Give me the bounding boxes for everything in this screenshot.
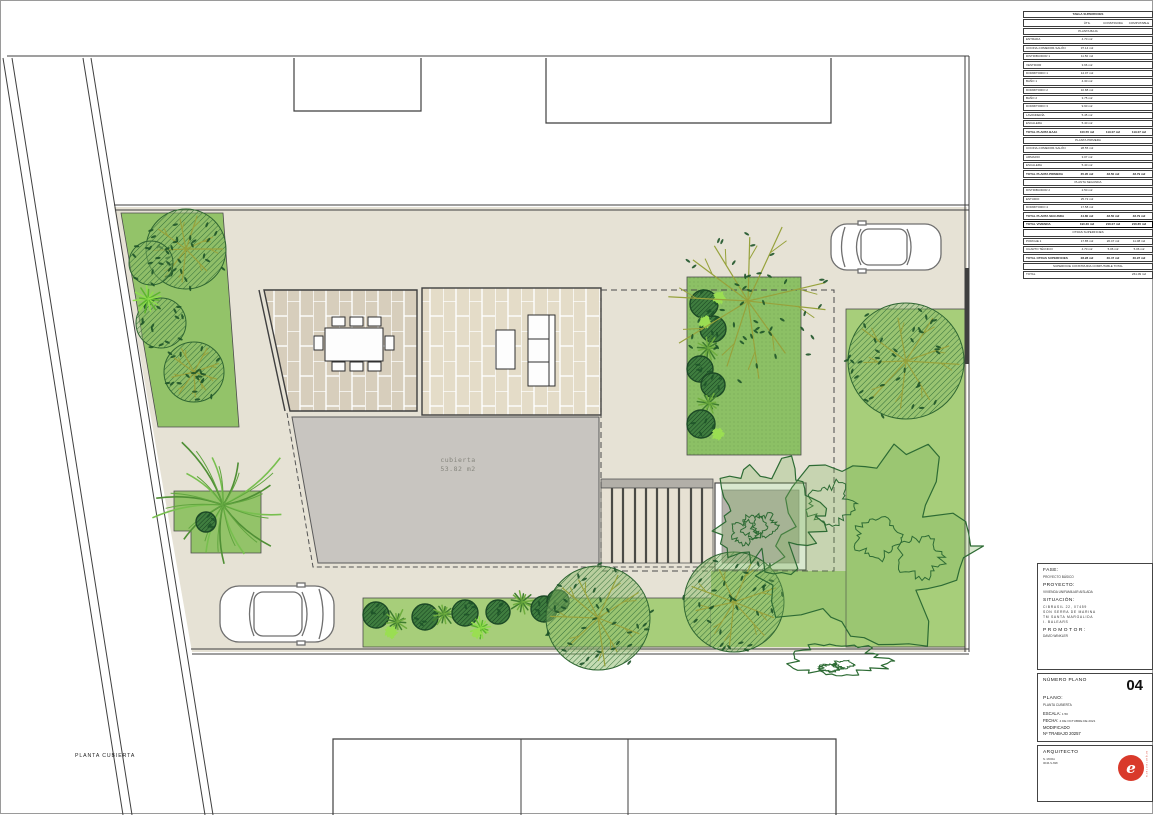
- car-parked-bottom: [220, 583, 334, 645]
- table-cell-value: 3.66 m2: [1074, 64, 1100, 67]
- logo-side-text: arquitectura: [1145, 751, 1148, 778]
- table-row: VESTIDOR3.66 m2: [1023, 61, 1153, 68]
- table-cell-value: 10.88 m2: [1074, 89, 1100, 92]
- road-line: [3, 58, 123, 815]
- roof-area-value: 53.82 m2: [440, 465, 475, 473]
- table-row-label: VESTIDOR: [1024, 64, 1074, 67]
- table-cell-value: 48.79 m2: [1126, 173, 1152, 176]
- table-row-label: TOTAL PLANTA SEGUNDA: [1024, 215, 1074, 218]
- situacion-line: C/BRASIL 22, 07459: [1043, 605, 1147, 609]
- table-cell-value: 4.30 m2: [1074, 80, 1100, 83]
- dining-table: [325, 328, 383, 361]
- table-cell-value: 216.65 m2: [1126, 223, 1152, 226]
- dining-chair: [368, 317, 381, 326]
- table-cell-value: 14.07 m2: [1074, 72, 1100, 75]
- dining-chair: [350, 317, 363, 326]
- neighbour-building-bottom: [333, 739, 836, 815]
- table-cell-value: 5.40 m2: [1074, 164, 1100, 167]
- table-row-label: ESCALERA: [1024, 164, 1074, 167]
- numero-plano-value: 04: [1126, 678, 1143, 693]
- neighbour-building-top: [546, 58, 831, 123]
- table-cell-value: 100.55 m2: [1074, 131, 1100, 134]
- table-row: ESCALERA5.40 m2: [1023, 120, 1153, 127]
- road-line: [12, 58, 132, 815]
- table-cell-value: 3.75 m2: [1074, 97, 1100, 100]
- table-row: TOTAL OTRAS SUPERFICIES28.28 m230.47 m23…: [1023, 254, 1153, 261]
- dining-chair: [332, 317, 345, 326]
- table-row: DORMITORIO 210.88 m2: [1023, 87, 1153, 94]
- table-cell-value: 119.07 m2: [1100, 131, 1126, 134]
- table-cell-value: 3.07 m2: [1074, 156, 1100, 159]
- dining-chair: [368, 362, 381, 371]
- table-cell-value: 44.80 m2: [1074, 215, 1100, 218]
- spiky-plant: [709, 402, 716, 403]
- table-cell-value: 5.45 m2: [1074, 114, 1100, 117]
- fase-value: PROYECTO BÁSICO: [1043, 575, 1147, 579]
- table-row-label: DISTRIBUIDOR 2: [1024, 189, 1074, 192]
- table-cell-value: 9.90 m2: [1074, 105, 1100, 108]
- plan-number-block: NÚMERO PLANO 04 PLANO: PLANTA CUBIERTA E…: [1037, 673, 1153, 742]
- arquitecto-name: N. MORA: [1043, 757, 1115, 761]
- neighbour-building-top: [294, 58, 421, 111]
- table-row: COCINA-COMEDOR-SALÓN28.55 m2: [1023, 145, 1153, 152]
- architect-logo: e: [1115, 752, 1147, 784]
- table-cell-value: 2.50 m2: [1074, 189, 1100, 192]
- table-cell-value: 35.95 m2: [1074, 173, 1100, 176]
- table-section-label: PLANTA BAJA: [1078, 30, 1098, 33]
- proyecto-label: PROYECTO:: [1043, 583, 1147, 588]
- table-row-label: DORMITORIO 4: [1024, 206, 1074, 209]
- coffee-table: [496, 330, 515, 369]
- table-row: BAÑO 23.75 m2: [1023, 95, 1153, 102]
- table-cell-value: 48.50 m2: [1100, 173, 1126, 176]
- table-row: ARMARIO3.07 m2: [1023, 154, 1153, 161]
- table-row-label: COCINA-COMEDOR-SALÓN: [1024, 147, 1074, 150]
- table-row: CUARTO TÉCNICO4.70 m25.06 m25.06 m2: [1023, 246, 1153, 253]
- table-row-label: TOTAL OTRAS SUPERFICIES: [1024, 257, 1074, 260]
- architect-block: ARQUITECTO N. MORA 0046-S-698 e arquitec…: [1037, 745, 1153, 802]
- table-row-label: DISTRIBUIDOR 1: [1024, 55, 1074, 58]
- table-row: PLANTA SEGUNDA: [1023, 179, 1153, 186]
- table-section-label: TABLA SUPERFICIES: [1073, 13, 1104, 16]
- table-row-label: TOTAL VIVIENDA: [1024, 223, 1074, 226]
- drawing-title: PLANTA CUBIERTA: [75, 753, 135, 759]
- table-cell-value: 119.07 m2: [1126, 131, 1152, 134]
- dining-chair: [350, 362, 363, 371]
- table-cell-value: 30.97 m2: [1126, 257, 1152, 260]
- leaf: [934, 348, 940, 350]
- shrub: [452, 600, 478, 626]
- car-parked-top: [831, 221, 941, 273]
- escala-value: 1:50: [1062, 712, 1068, 716]
- table-cell-value: 30.47 m2: [1100, 257, 1126, 260]
- table-cell-value: 28.55 m2: [1074, 147, 1100, 150]
- roof-label: cubierta: [440, 456, 475, 464]
- table-row: TOTAL PLANTA PRIMERA35.95 m248.50 m248.7…: [1023, 170, 1153, 177]
- table-row: TOTAL PLANTA BAJA100.55 m2119.07 m2119.0…: [1023, 128, 1153, 135]
- dining-chair: [385, 336, 394, 350]
- table-row: COCINA-COMEDOR-SALÓN37.14 m2: [1023, 45, 1153, 52]
- table-row-label: DORMITORIO 1: [1024, 72, 1074, 75]
- situacion-line: SON SERRA DE MARINA: [1043, 610, 1147, 614]
- proyecto-value: VIVIENDA UNIFAMILIAR AISLADA: [1043, 590, 1147, 594]
- table-row: DORMITORIO 39.90 m2: [1023, 103, 1153, 110]
- table-cell-value: 20.47 m2: [1100, 240, 1126, 243]
- table-row-label: PORCHE 1: [1024, 240, 1074, 243]
- numero-plano-label: NÚMERO PLANO: [1043, 678, 1087, 683]
- table-cell-value: 28.28 m2: [1074, 257, 1100, 260]
- table-cell-value: 261.09 m2: [1126, 273, 1152, 276]
- table-cell-value: COMPUTABLE: [1126, 22, 1152, 25]
- promotor-value: DAVID WINKLER: [1043, 634, 1147, 638]
- table-row-label: DORMITORIO 2: [1024, 89, 1074, 92]
- table-row: PORCHE 117.85 m220.47 m211.08 m2: [1023, 238, 1153, 245]
- table-row-label: CUARTO TÉCNICO: [1024, 248, 1074, 251]
- table-row: PLANTA BAJA: [1023, 28, 1153, 35]
- table-row: LAVANDERÍA5.45 m2: [1023, 112, 1153, 119]
- promotor-label: PROMOTOR:: [1043, 628, 1147, 633]
- situacion-line: TM SANTA MARGALIDA: [1043, 615, 1147, 619]
- table-section-label: PLANTA SEGUNDA: [1075, 181, 1102, 184]
- table-row: PLANTA PRIMERA: [1023, 137, 1153, 144]
- arquitecto-number: 0046-S-698: [1043, 761, 1115, 765]
- table-row-label: ENTRADA: [1024, 38, 1074, 41]
- table-cell-value: 5.06 m2: [1126, 248, 1152, 251]
- table-row: TOTAL261.09 m2: [1023, 271, 1153, 278]
- table-row-label: DORMITORIO 3: [1024, 105, 1074, 108]
- plano-label: PLANO:: [1043, 696, 1147, 701]
- table-row: DISTRIBUIDOR 111.50 m2: [1023, 53, 1153, 60]
- table-row: DISTRIBUIDOR 22.50 m2: [1023, 187, 1153, 194]
- logo-letter: e: [1126, 759, 1136, 777]
- table-row: OTRAS SUPERFICIES: [1023, 229, 1153, 236]
- table-row: TOTAL VIVIENDA190.30 m2216.07 m2216.65 m…: [1023, 221, 1153, 228]
- fase-label: FASE:: [1043, 568, 1147, 573]
- shrub: [196, 512, 216, 532]
- table-row: ESCALERA5.40 m2: [1023, 162, 1153, 169]
- table-cell-value: 216.07 m2: [1100, 223, 1126, 226]
- tree-branch: [921, 386, 922, 397]
- table-row: TABLA SUPERFICIES: [1023, 11, 1153, 18]
- tree-branch: [724, 572, 725, 581]
- table-row-label: ARMARIO: [1024, 156, 1074, 159]
- table-row-label: TOTAL PLANTA PRIMERA: [1024, 173, 1074, 176]
- fecha-label: FECHA:: [1043, 718, 1058, 723]
- table-section-label: PLANTA PRIMERA: [1075, 139, 1101, 142]
- project-info-block: FASE: PROYECTO BÁSICO PROYECTO: VIVIENDA…: [1037, 563, 1153, 670]
- modificado-label: MODIFICADO: [1043, 725, 1147, 730]
- table-cell-value: 4.70 m2: [1074, 38, 1100, 41]
- situacion-label: SITUACIÓN:: [1043, 598, 1147, 603]
- site-plan-drawing: cubierta 53.82 m2: [1, 1, 1153, 815]
- table-cell-value: 5.40 m2: [1074, 122, 1100, 125]
- shrub: [412, 604, 438, 630]
- table-row: SUPERFICIE CONSTRUIDA COMPUTABLE TOTAL: [1023, 263, 1153, 270]
- table-cell-value: 11.50 m2: [1074, 55, 1100, 58]
- table-cell-value: 17.85 m2: [1074, 240, 1100, 243]
- table-row: ESTUDIO25.72 m2: [1023, 196, 1153, 203]
- table-row-label: ESCALERA: [1024, 122, 1074, 125]
- table-row: ÚTILCONSTRUIDACOMPUTABLE: [1023, 19, 1153, 26]
- table-row-label: ESTUDIO: [1024, 198, 1074, 201]
- table-cell-value: 48.79 m2: [1126, 215, 1152, 218]
- roof-cubierta: [292, 417, 599, 563]
- table-row: DORMITORIO 114.07 m2: [1023, 70, 1153, 77]
- table-row: TOTAL PLANTA SEGUNDA44.80 m248.50 m248.7…: [1023, 212, 1153, 219]
- table-cell-value: 17.58 m2: [1074, 206, 1100, 209]
- arquitecto-label: ARQUITECTO: [1043, 750, 1115, 755]
- dining-chair: [332, 362, 345, 371]
- table-row: DORMITORIO 417.58 m2: [1023, 204, 1153, 211]
- situacion-line: I. BALEARS: [1043, 620, 1147, 624]
- drawing-sheet: cubierta 53.82 m2 TABLA SUPERFICIESÚTILC…: [0, 0, 1153, 814]
- table-cell-value: CONSTRUIDA: [1100, 22, 1126, 25]
- stairs: [601, 479, 713, 563]
- table-cell-value: ÚTIL: [1074, 22, 1100, 25]
- table-cell-value: 5.06 m2: [1100, 248, 1126, 251]
- table-section-label: OTRAS SUPERFICIES: [1072, 231, 1103, 234]
- table-row: BAÑO 14.30 m2: [1023, 78, 1153, 85]
- table-cell-value: 48.50 m2: [1100, 215, 1126, 218]
- table-row-label: TOTAL PLANTA BAJA: [1024, 131, 1074, 134]
- table-row-label: LAVANDERÍA: [1024, 114, 1074, 117]
- dining-chair: [314, 336, 323, 350]
- table-row-label: COCINA-COMEDOR-SALÓN: [1024, 47, 1074, 50]
- table-row: ENTRADA4.70 m2: [1023, 36, 1153, 43]
- plano-value: PLANTA CUBIERTA: [1043, 703, 1147, 707]
- trabajo-label: Nº TRABAJO 20257: [1043, 731, 1147, 736]
- sofa: [528, 315, 555, 386]
- table-cell-value: 11.08 m2: [1126, 240, 1152, 243]
- table-row-label: BAÑO 1: [1024, 80, 1074, 83]
- surface-table: TABLA SUPERFICIESÚTILCONSTRUIDACOMPUTABL…: [1023, 11, 1153, 280]
- table-row-label: BAÑO 2: [1024, 97, 1074, 100]
- table-cell-value: 190.30 m2: [1074, 223, 1100, 226]
- table-section-label: SUPERFICIE CONSTRUIDA COMPUTABLE TOTAL: [1053, 265, 1123, 268]
- table-cell-value: 37.14 m2: [1074, 47, 1100, 50]
- table-cell-value: 25.72 m2: [1074, 198, 1100, 201]
- table-cell-value: 4.70 m2: [1074, 248, 1100, 251]
- table-row-label: TOTAL: [1024, 273, 1074, 276]
- fecha-value: 4 DE OCTUBRE DE 2021: [1060, 719, 1096, 723]
- escala-label: ESCALA:: [1043, 711, 1061, 716]
